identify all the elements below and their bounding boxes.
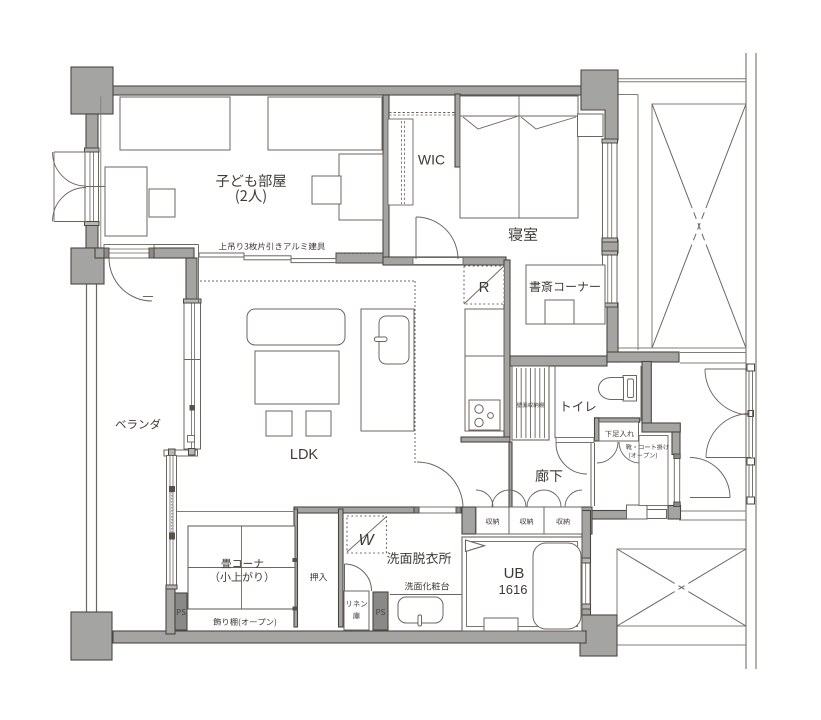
- svg-text:1616: 1616: [499, 582, 528, 597]
- svg-text:W: W: [358, 532, 375, 549]
- svg-text:WIC: WIC: [418, 152, 445, 168]
- svg-text:LDK: LDK: [290, 447, 319, 463]
- svg-text:R: R: [479, 279, 490, 296]
- svg-text:UB: UB: [504, 565, 525, 582]
